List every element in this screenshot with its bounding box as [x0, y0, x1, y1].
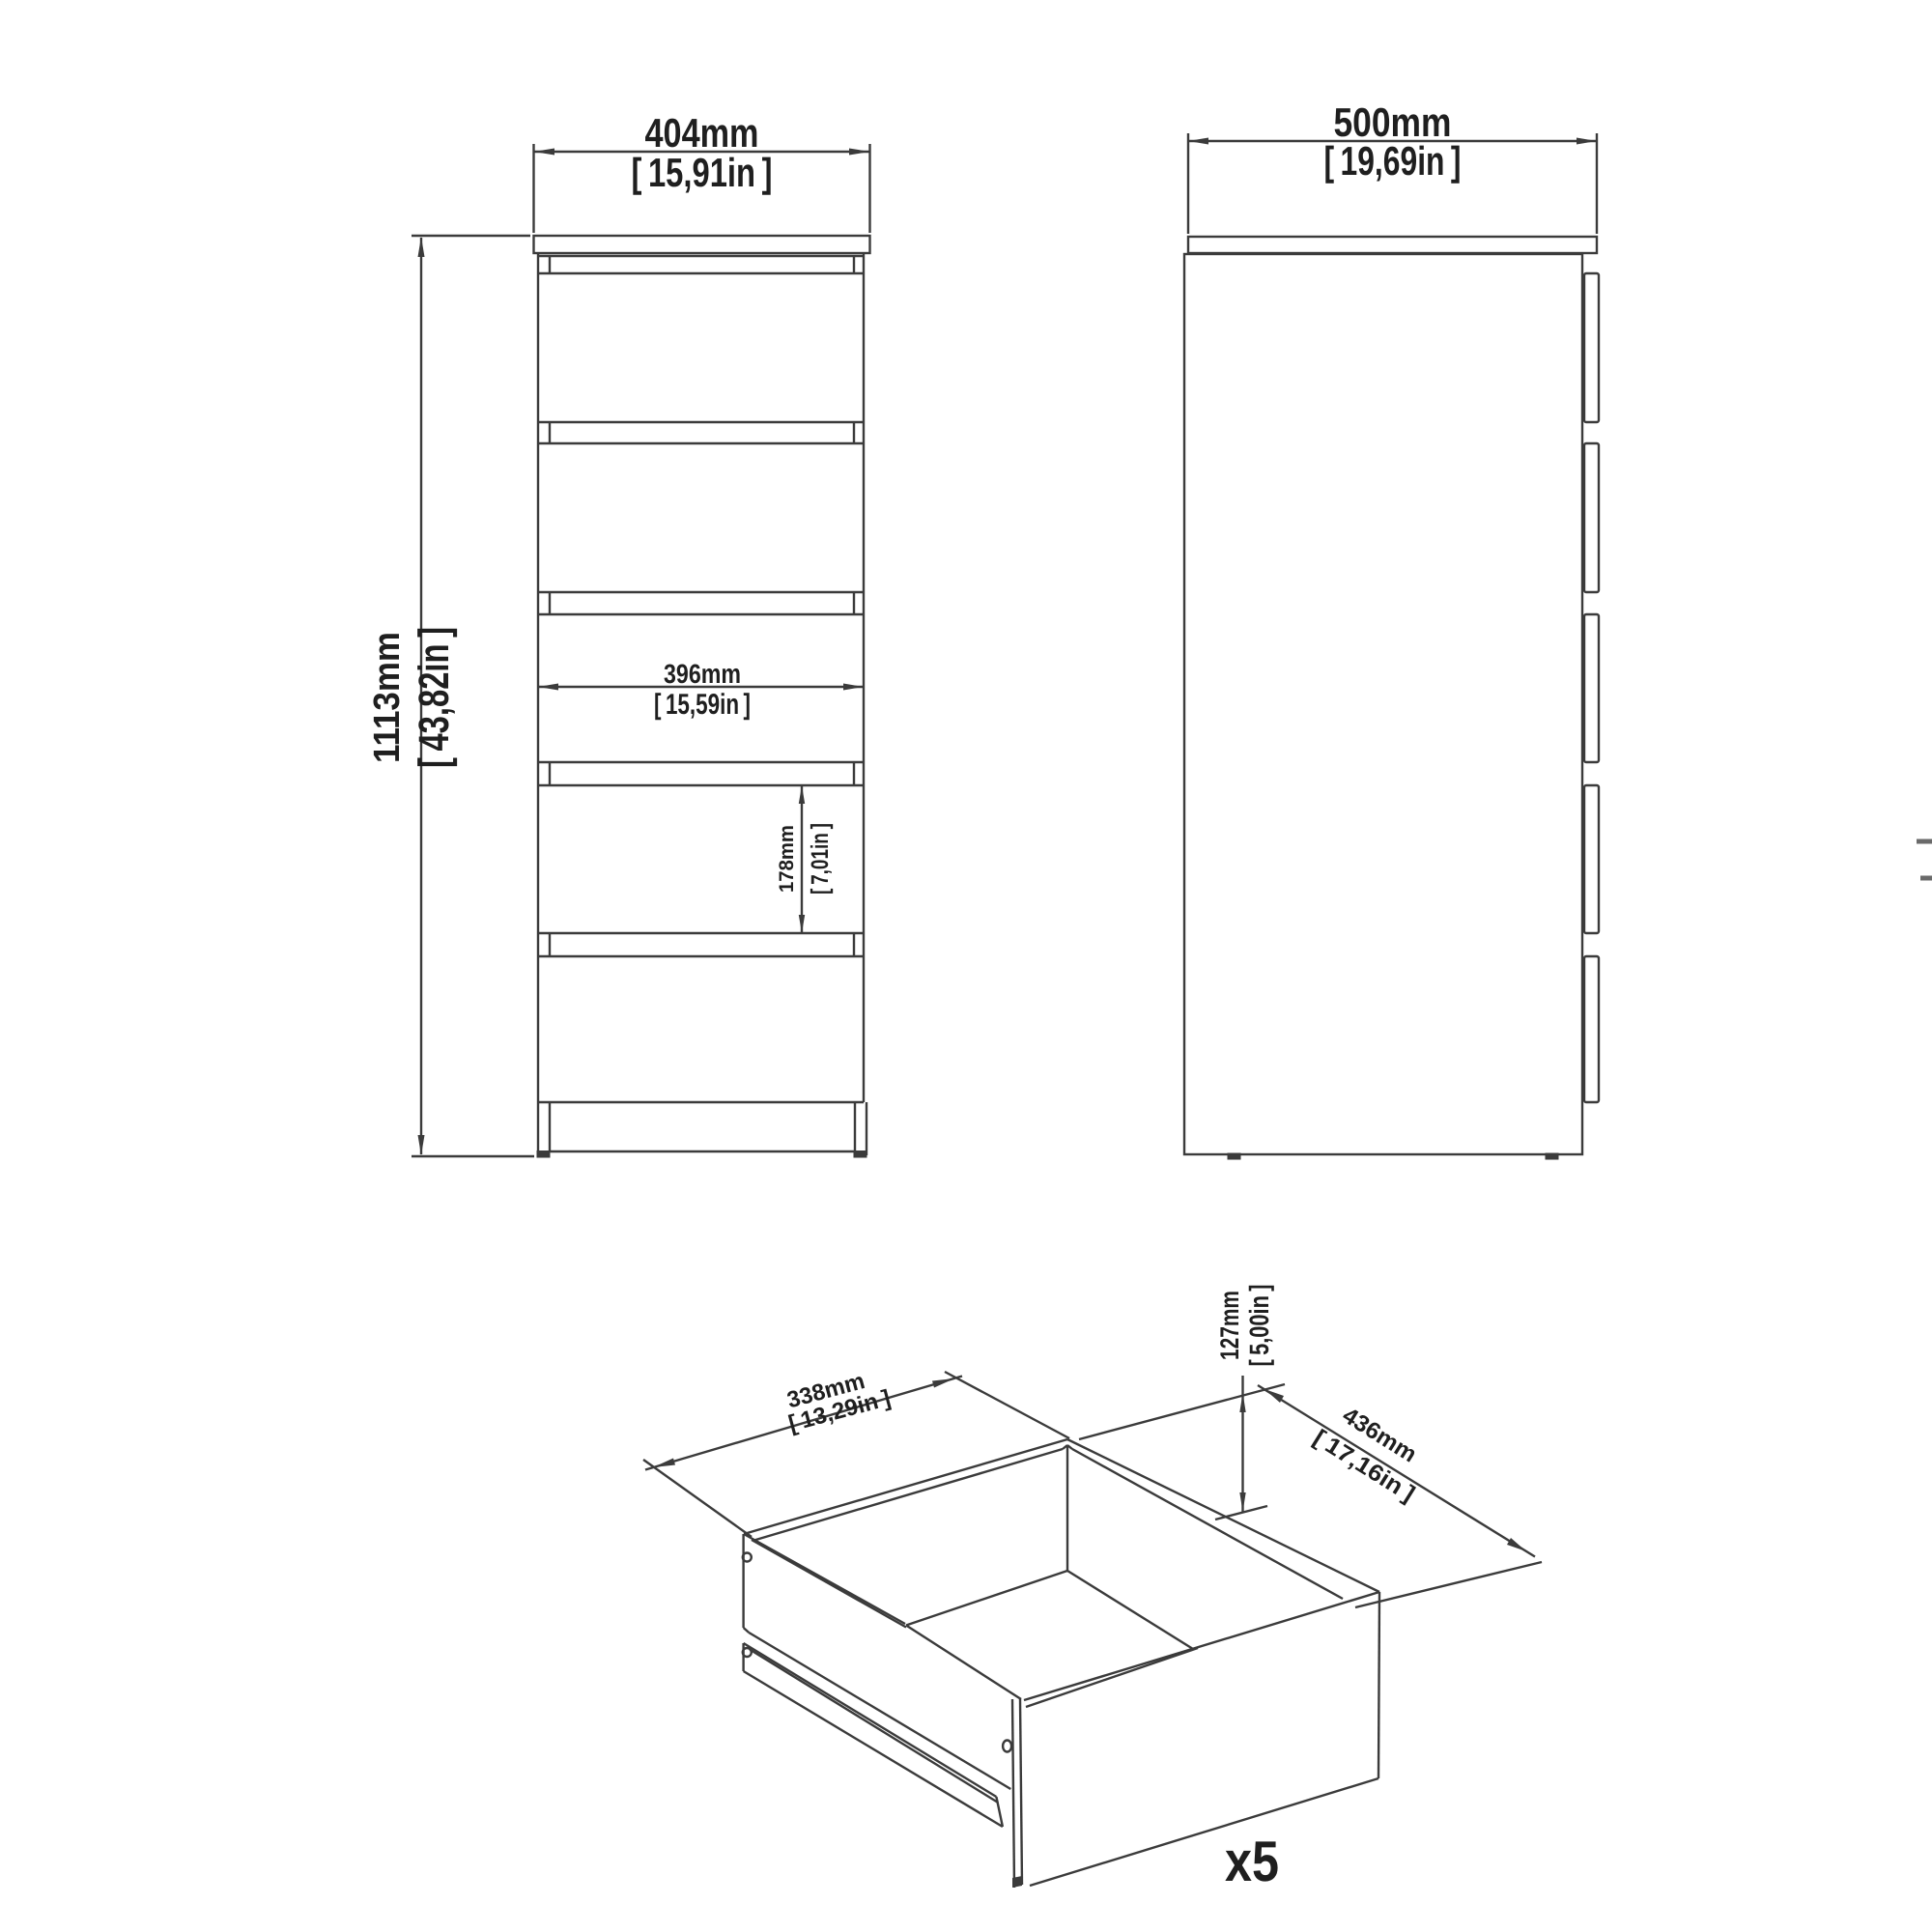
svg-text:[ 5,00in ]: [ 5,00in ]	[1244, 1285, 1274, 1367]
svg-text:178mm: 178mm	[776, 825, 798, 893]
svg-text:x5: x5	[1225, 1830, 1279, 1893]
svg-text:[ 19,69in ]: [ 19,69in ]	[1324, 138, 1462, 184]
svg-text:127mm: 127mm	[1215, 1291, 1244, 1360]
svg-text:[ 43,82in ]: [ 43,82in ]	[411, 627, 458, 768]
svg-text:[ 15,59in ]: [ 15,59in ]	[654, 689, 751, 721]
svg-text:404mm: 404mm	[645, 110, 759, 156]
svg-text:[ 7,01in ]: [ 7,01in ]	[807, 823, 834, 895]
svg-text:396mm: 396mm	[664, 659, 741, 689]
svg-text:1113mm: 1113mm	[367, 632, 408, 763]
svg-text:[ 15,91in ]: [ 15,91in ]	[632, 150, 773, 195]
